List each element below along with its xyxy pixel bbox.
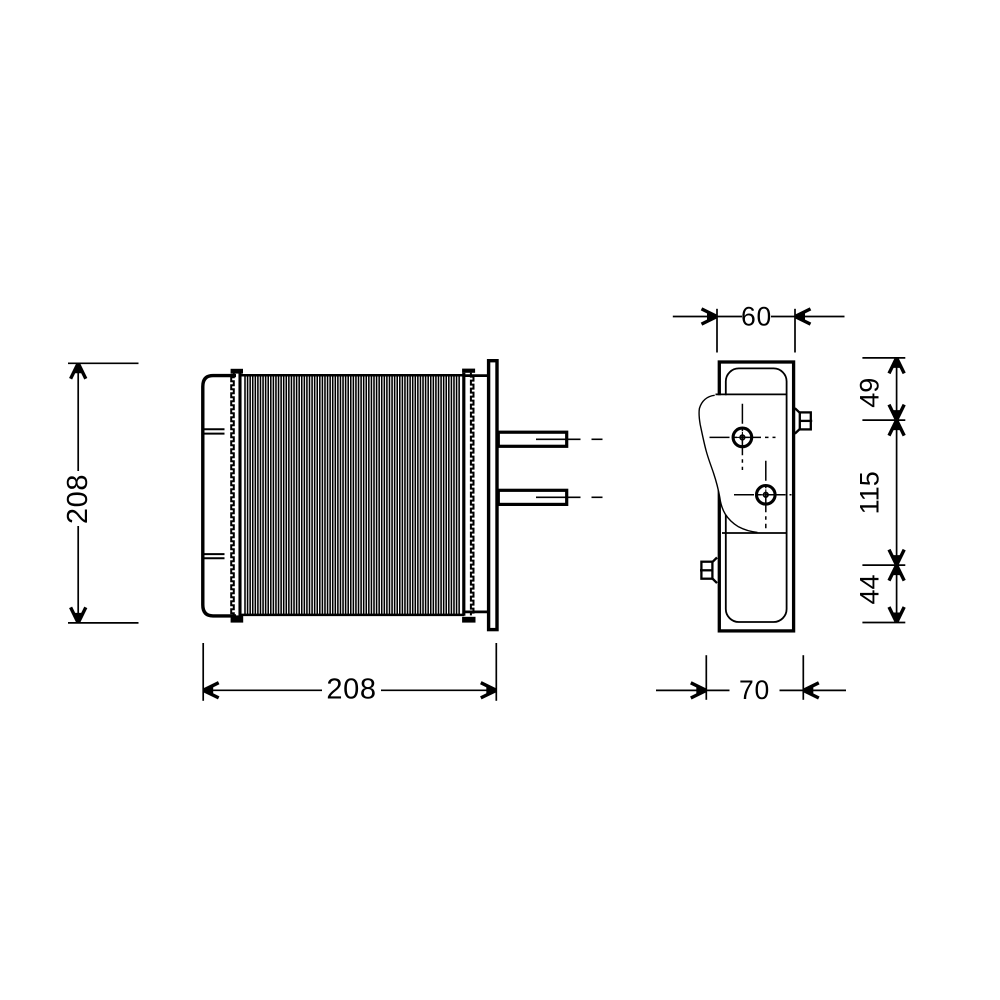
svg-text:60: 60 [741, 302, 772, 332]
svg-text:208: 208 [62, 474, 94, 524]
svg-text:208: 208 [326, 674, 376, 706]
svg-text:49: 49 [854, 378, 884, 408]
svg-text:115: 115 [854, 471, 884, 514]
svg-text:70: 70 [739, 675, 770, 705]
svg-text:44: 44 [854, 574, 884, 604]
